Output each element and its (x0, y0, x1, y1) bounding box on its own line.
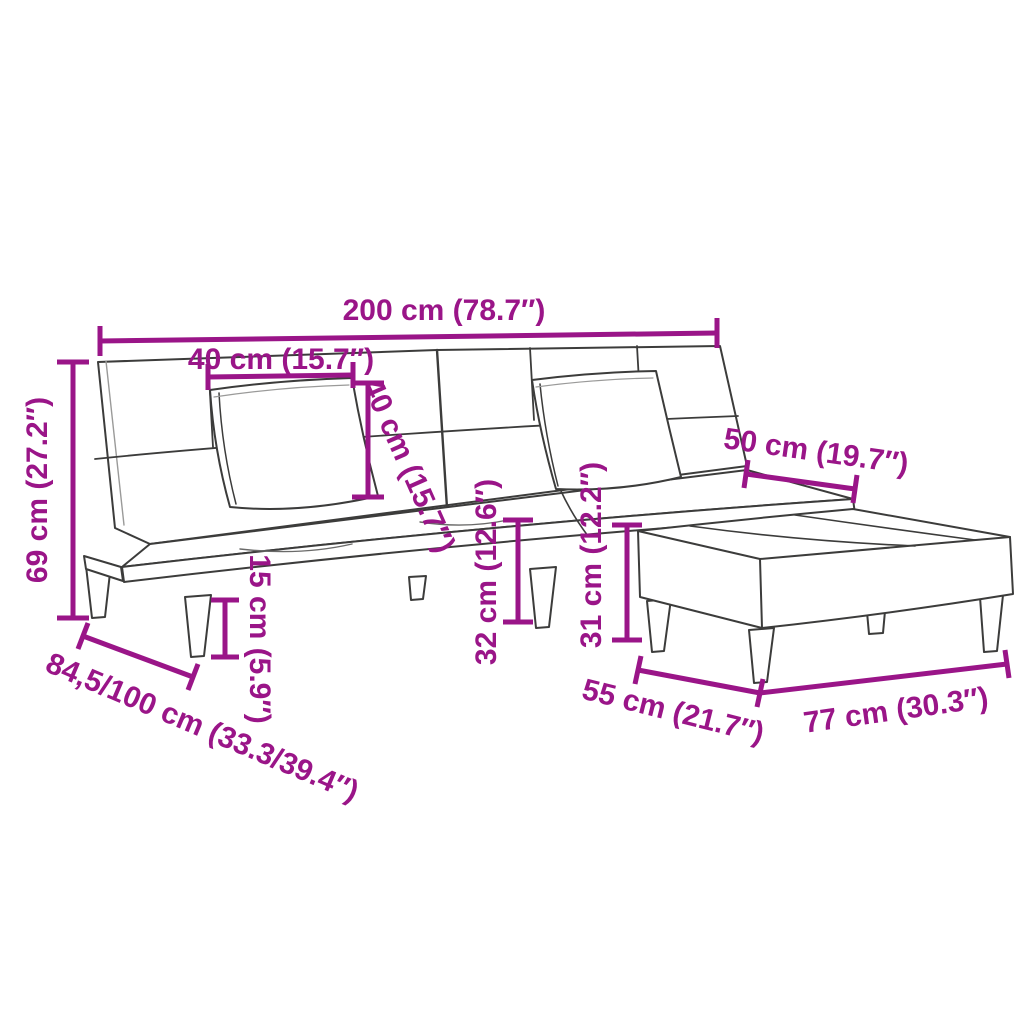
dim-line-back-height (57, 362, 89, 618)
sofa-pillow-left (210, 378, 378, 509)
dim-line-leg-height (211, 600, 239, 657)
dimension-label-back-height: 69 cm (27.2″) (23, 397, 53, 583)
dimension-label-ottoman-height: 31 cm (12.2″) (577, 462, 607, 648)
sofa-line-art (0, 0, 1024, 1024)
dimension-diagram: 200 cm (78.7″) 40 cm (15.7″) 40 cm (15.7… (0, 0, 1024, 1024)
ottoman-body (638, 509, 1013, 628)
dimension-label-seat-height: 32 cm (12.6″) (472, 479, 502, 665)
dimension-label-total-width: 200 cm (78.7″) (343, 296, 546, 326)
dimension-label-leg-height: 15 cm (5.9″) (244, 554, 274, 723)
dimension-label-pillow-width: 40 cm (15.7″) (188, 345, 374, 375)
